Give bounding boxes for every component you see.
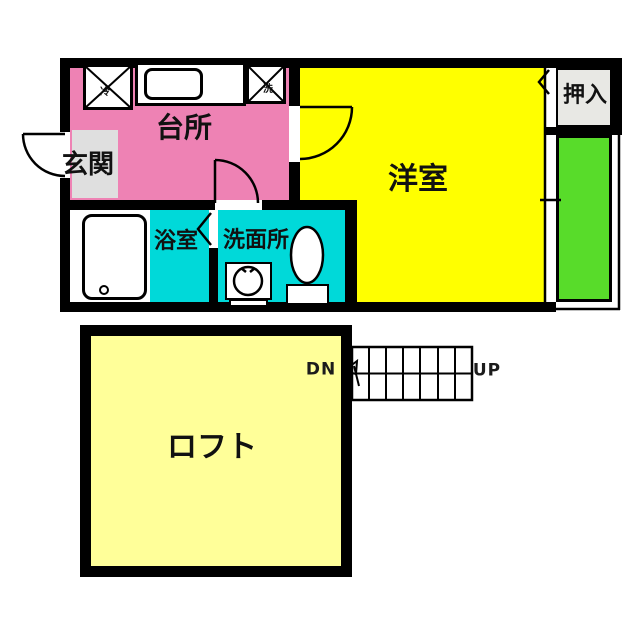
stairs-up-label: UP xyxy=(473,363,501,380)
kitchen-door-swing xyxy=(215,160,258,203)
floor-plan-page: 台所 玄関 洋室 押入 浴室 洗面所 ロフト DN UP 冷 洗 xyxy=(0,0,640,640)
entry-door-swing xyxy=(23,134,65,176)
western-room-label: 洋室 xyxy=(388,165,448,195)
washbasin-bowl xyxy=(234,267,262,295)
bathroom-label: 浴室 xyxy=(154,231,198,253)
washer-mark: 洗 xyxy=(263,85,273,95)
kitchen-label: 台所 xyxy=(156,114,212,142)
stairs-down-label: DN xyxy=(306,362,336,379)
bathtub-drain xyxy=(100,286,108,294)
window-to-balcony xyxy=(540,68,561,302)
loft-label: ロフト xyxy=(167,433,257,463)
balcony-railing xyxy=(556,135,620,310)
staircase xyxy=(352,347,472,400)
entrance-label: 玄関 xyxy=(62,152,114,178)
western-room-door-swing xyxy=(300,107,352,159)
closet-label: 押入 xyxy=(563,85,607,107)
plan-linework-overlay xyxy=(0,0,640,640)
bathroom-folding-door xyxy=(198,213,211,245)
washroom-label: 洗面所 xyxy=(223,230,289,252)
refrigerator-mark: 冷 xyxy=(100,88,110,98)
toilet-tank xyxy=(291,227,323,283)
